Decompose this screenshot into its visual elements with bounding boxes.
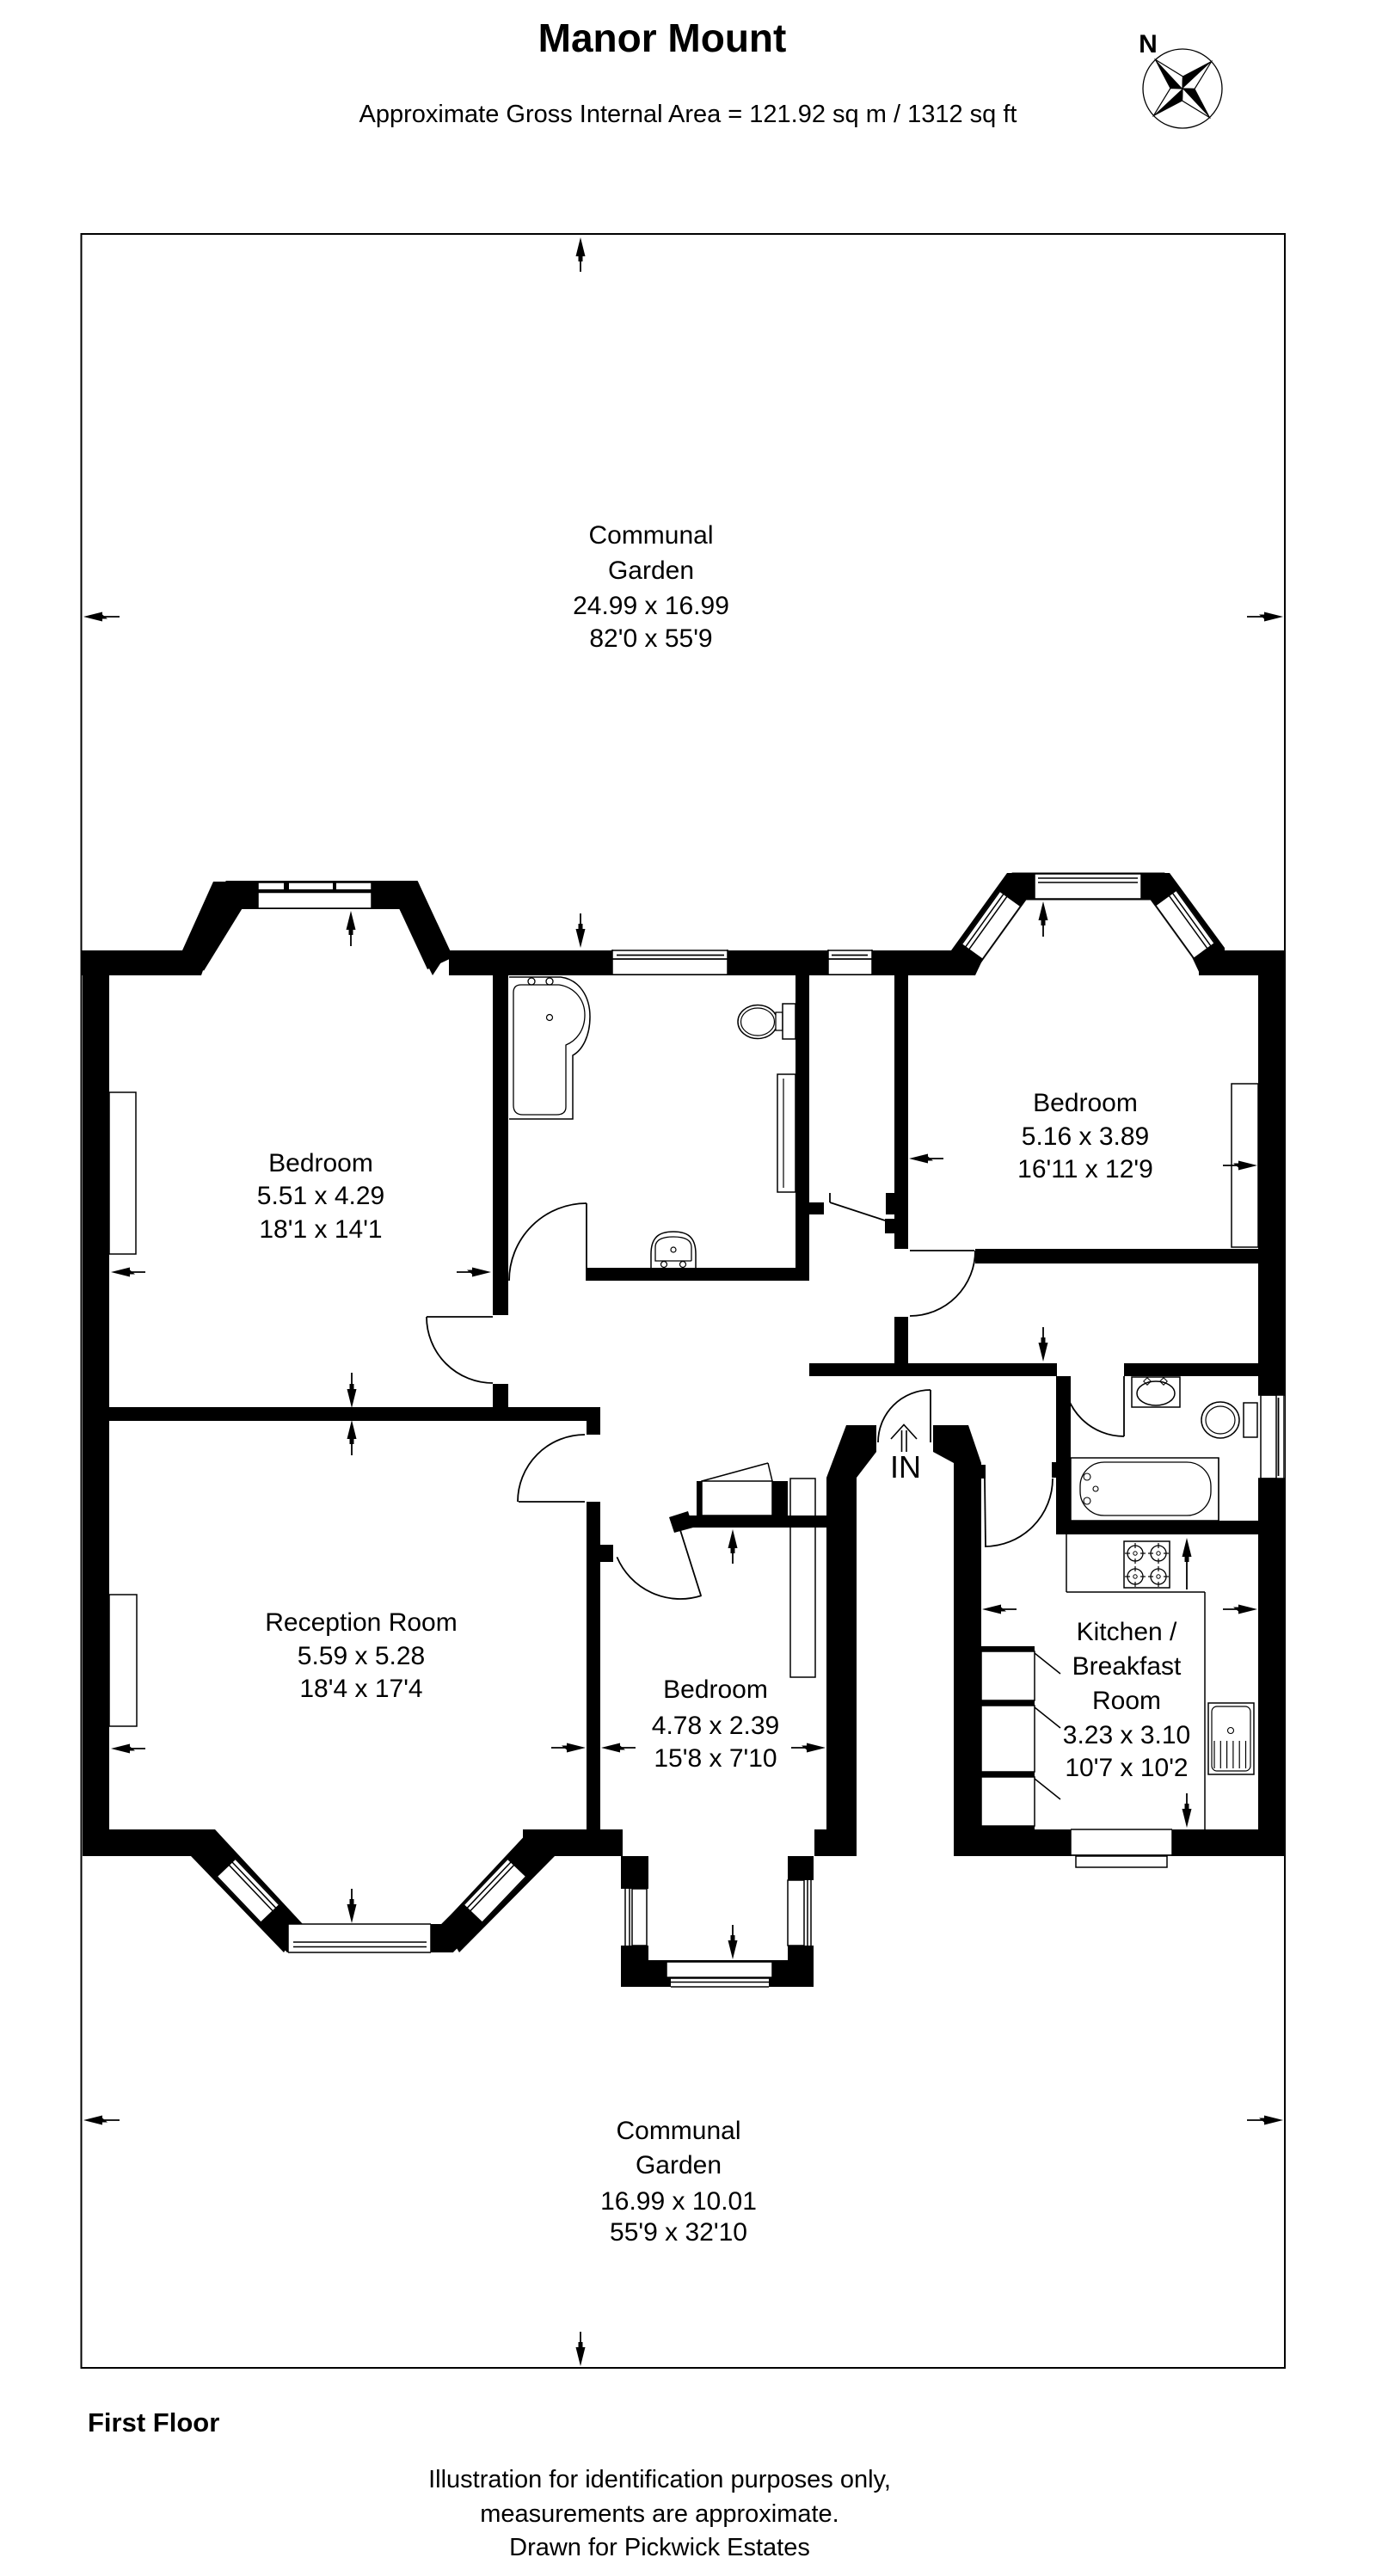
svg-text:Manor Mount: Manor Mount — [538, 15, 787, 60]
svg-text:Breakfast: Breakfast — [1072, 1652, 1182, 1681]
svg-text:16.99 x 10.01: 16.99 x 10.01 — [600, 2187, 757, 2216]
svg-text:55'9 x 32'10: 55'9 x 32'10 — [610, 2218, 747, 2247]
svg-text:82'0 x 55'9: 82'0 x 55'9 — [589, 624, 712, 653]
svg-text:Garden: Garden — [636, 2151, 722, 2179]
svg-text:Communal: Communal — [588, 521, 713, 550]
svg-text:Illustration for identificatio: Illustration for identification purposes… — [428, 2466, 891, 2493]
svg-text:First Floor: First Floor — [88, 2407, 219, 2438]
svg-text:Approximate Gross Internal Are: Approximate Gross Internal Area = 121.92… — [359, 101, 1017, 128]
svg-text:5.51 x 4.29: 5.51 x 4.29 — [257, 1182, 384, 1210]
svg-text:Communal: Communal — [616, 2117, 740, 2145]
svg-text:Kitchen /: Kitchen / — [1077, 1618, 1177, 1646]
svg-text:16'11 x 12'9: 16'11 x 12'9 — [1017, 1155, 1153, 1183]
svg-text:Bedroom: Bedroom — [1033, 1089, 1138, 1117]
svg-text:4.78 x 2.39: 4.78 x 2.39 — [652, 1712, 779, 1740]
svg-text:5.59 x 5.28: 5.59 x 5.28 — [298, 1642, 425, 1670]
svg-text:IN: IN — [890, 1449, 921, 1485]
svg-text:measurements are approximate.: measurements are approximate. — [480, 2500, 838, 2528]
svg-text:Bedroom: Bedroom — [268, 1149, 373, 1177]
svg-text:Reception Room: Reception Room — [265, 1608, 457, 1637]
svg-text:15'8 x 7'10: 15'8 x 7'10 — [654, 1744, 777, 1773]
svg-text:18'4 x 17'4: 18'4 x 17'4 — [299, 1675, 422, 1703]
svg-text:3.23 x 3.10: 3.23 x 3.10 — [1063, 1721, 1190, 1749]
svg-text:N: N — [1139, 30, 1158, 58]
svg-text:Room: Room — [1092, 1687, 1161, 1715]
svg-text:Drawn for Pickwick Estates: Drawn for Pickwick Estates — [509, 2534, 810, 2561]
svg-text:10'7 x 10'2: 10'7 x 10'2 — [1065, 1754, 1188, 1782]
svg-text:Bedroom: Bedroom — [663, 1675, 768, 1704]
svg-text:5.16 x 3.89: 5.16 x 3.89 — [1022, 1122, 1149, 1151]
svg-text:18'1 x 14'1: 18'1 x 14'1 — [259, 1215, 382, 1244]
svg-text:24.99 x 16.99: 24.99 x 16.99 — [573, 592, 729, 620]
svg-text:Garden: Garden — [608, 556, 694, 585]
